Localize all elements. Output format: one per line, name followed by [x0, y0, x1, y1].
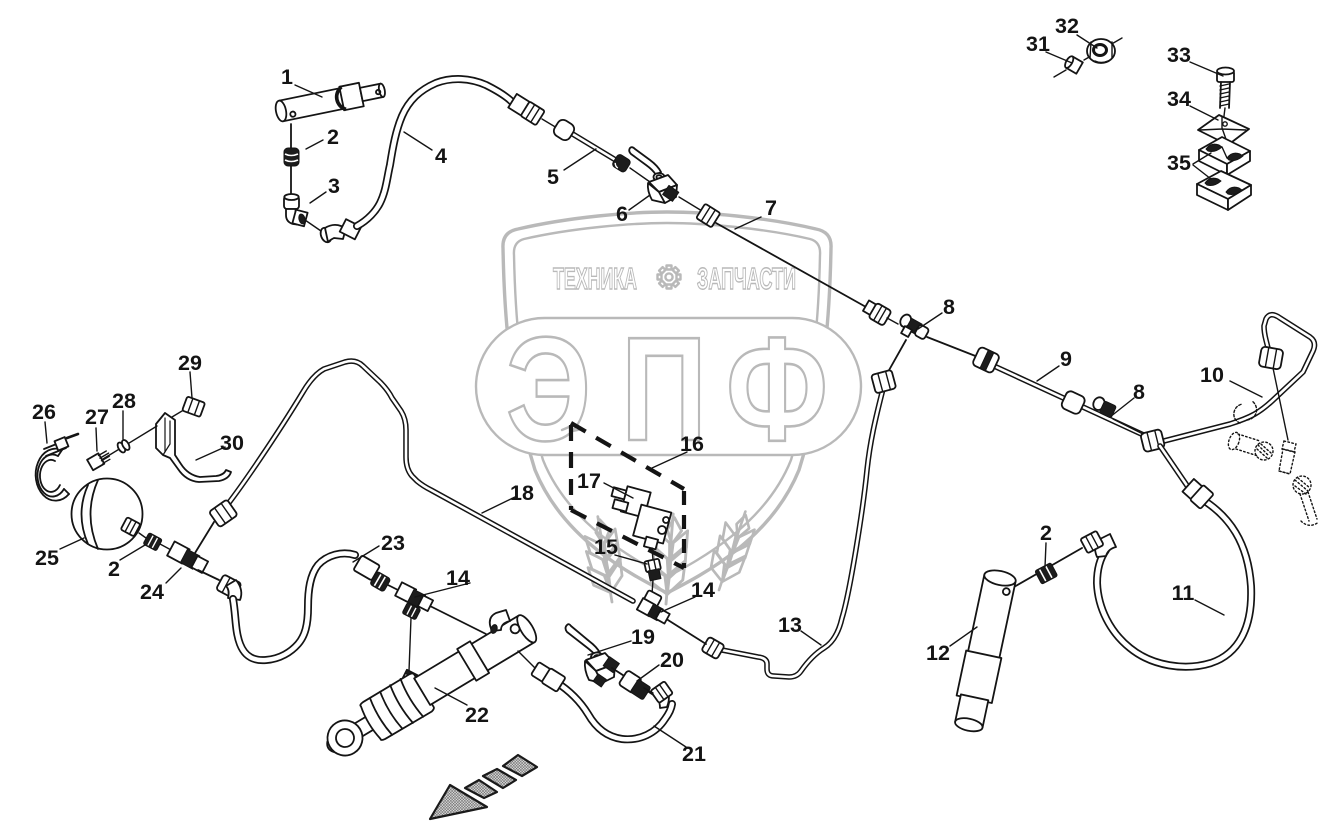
svg-text:4: 4 [435, 144, 447, 168]
svg-text:19: 19 [631, 625, 655, 649]
svg-text:13: 13 [778, 613, 802, 637]
svg-text:5: 5 [547, 165, 559, 189]
svg-text:29: 29 [178, 351, 202, 375]
svg-text:10: 10 [1200, 363, 1224, 387]
svg-text:33: 33 [1167, 43, 1191, 67]
svg-text:14: 14 [446, 566, 470, 590]
svg-text:8: 8 [943, 295, 955, 319]
svg-text:Э: Э [506, 307, 591, 472]
svg-text:28: 28 [112, 389, 136, 413]
svg-text:34: 34 [1167, 87, 1191, 111]
svg-text:2: 2 [327, 125, 339, 149]
svg-text:32: 32 [1055, 14, 1079, 38]
svg-text:Ф: Ф [726, 307, 828, 472]
svg-text:16: 16 [680, 432, 704, 456]
svg-text:1: 1 [281, 65, 293, 89]
svg-text:35: 35 [1167, 151, 1191, 175]
svg-text:3: 3 [328, 174, 340, 198]
svg-text:31: 31 [1026, 32, 1050, 56]
svg-text:17: 17 [577, 469, 601, 493]
svg-text:12: 12 [926, 641, 950, 665]
svg-text:23: 23 [381, 531, 405, 555]
svg-text:25: 25 [35, 546, 59, 570]
svg-text:11: 11 [1172, 581, 1195, 605]
svg-text:8: 8 [1133, 380, 1145, 404]
svg-text:ЗАПЧАСТИ: ЗАПЧАСТИ [697, 261, 796, 296]
svg-text:26: 26 [32, 400, 56, 424]
svg-text:ТЕХНИКА: ТЕХНИКА [553, 261, 637, 296]
svg-text:22: 22 [465, 703, 489, 727]
svg-text:18: 18 [510, 481, 534, 505]
svg-text:2: 2 [108, 557, 120, 581]
svg-text:30: 30 [220, 431, 244, 455]
svg-text:9: 9 [1060, 347, 1072, 371]
svg-text:27: 27 [85, 405, 109, 429]
svg-text:2: 2 [1040, 521, 1052, 545]
svg-text:7: 7 [765, 196, 777, 220]
svg-text:6: 6 [616, 202, 628, 226]
svg-text:24: 24 [140, 580, 164, 604]
svg-text:15: 15 [594, 535, 618, 559]
svg-text:14: 14 [691, 578, 715, 602]
svg-text:20: 20 [660, 648, 684, 672]
svg-text:21: 21 [682, 742, 706, 766]
